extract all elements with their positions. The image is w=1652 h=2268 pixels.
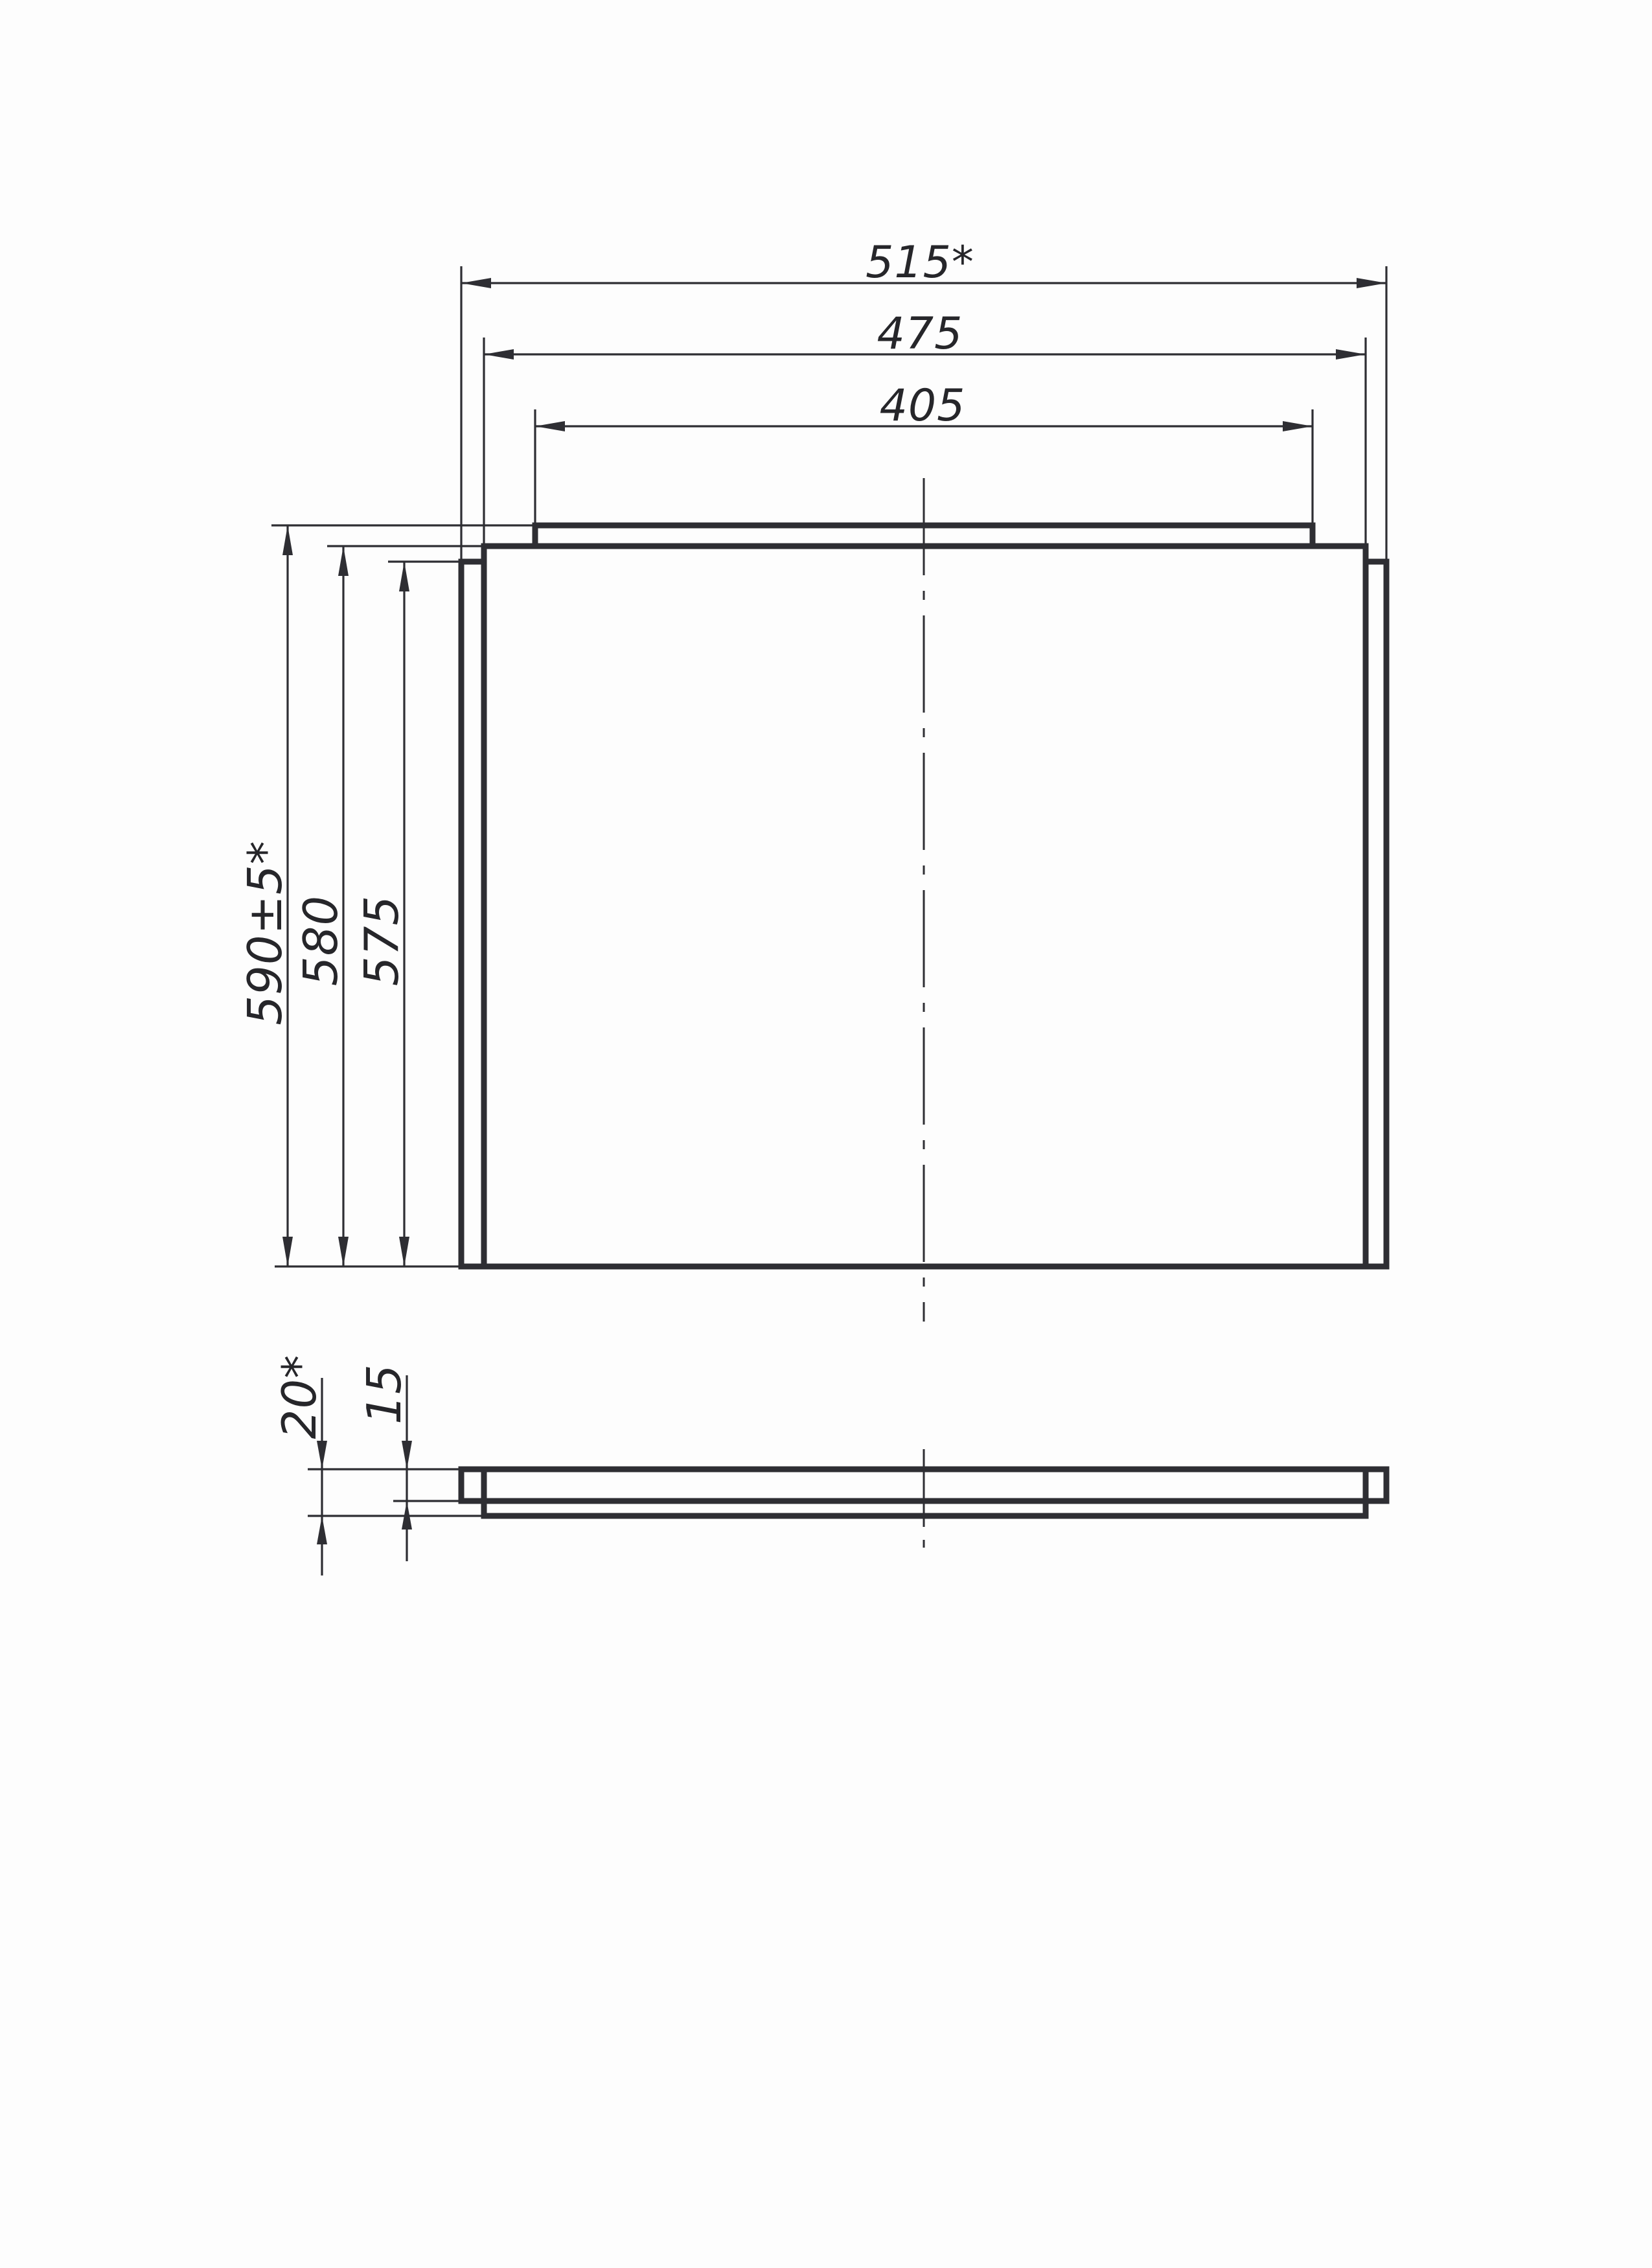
dim-label-width-face: 475 [877, 308, 963, 360]
dim-height-face: 580 [293, 546, 349, 1266]
dim-label-thickness-sheet: 15 [357, 1364, 411, 1425]
profile-view [461, 1449, 1386, 1555]
dim-arrow-bottom [399, 1237, 409, 1266]
dim-width-overall: 515* [461, 237, 1386, 288]
dim-arrow-down [317, 1441, 327, 1469]
dim-height-overall: 590±5* [238, 525, 293, 1266]
dim-arrow-bottom [282, 1237, 293, 1266]
drawing-sheet: 515* 475 405 590±5* [0, 0, 1652, 2268]
dim-thickness-overall: 20* [272, 1355, 327, 1575]
dim-arrow-up [317, 1516, 327, 1544]
dim-arrow-right [1357, 278, 1386, 288]
dim-width-face: 475 [484, 308, 1366, 360]
dim-label-height-overall: 590±5* [238, 840, 292, 1025]
dim-label-height-face: 580 [293, 895, 348, 986]
dim-arrow-left [461, 278, 491, 288]
dim-arrow-top [399, 562, 409, 591]
dim-thickness-sheet: 15 [357, 1364, 412, 1561]
dim-arrow-right [1283, 421, 1313, 431]
dim-arrow-down [402, 1441, 412, 1469]
dim-label-width-tab: 405 [880, 380, 966, 431]
dimensions: 515* 475 405 590±5* [238, 237, 1386, 1575]
dim-height-body: 575 [354, 562, 409, 1266]
extension-lines [271, 266, 1386, 1516]
dim-arrow-left [484, 349, 514, 360]
dim-arrow-left [535, 421, 565, 431]
dim-arrow-top [338, 546, 349, 576]
dim-label-thickness-overall: 20* [272, 1355, 327, 1439]
dim-arrow-right [1336, 349, 1366, 360]
dim-width-tab: 405 [535, 380, 1313, 431]
front-view [461, 478, 1386, 1322]
dim-arrow-top [282, 525, 293, 555]
dim-label-height-body: 575 [354, 895, 409, 986]
technical-drawing: 515* 475 405 590±5* [0, 0, 1652, 2268]
dim-arrow-bottom [338, 1237, 349, 1266]
dim-label-width-overall: 515* [866, 237, 974, 288]
